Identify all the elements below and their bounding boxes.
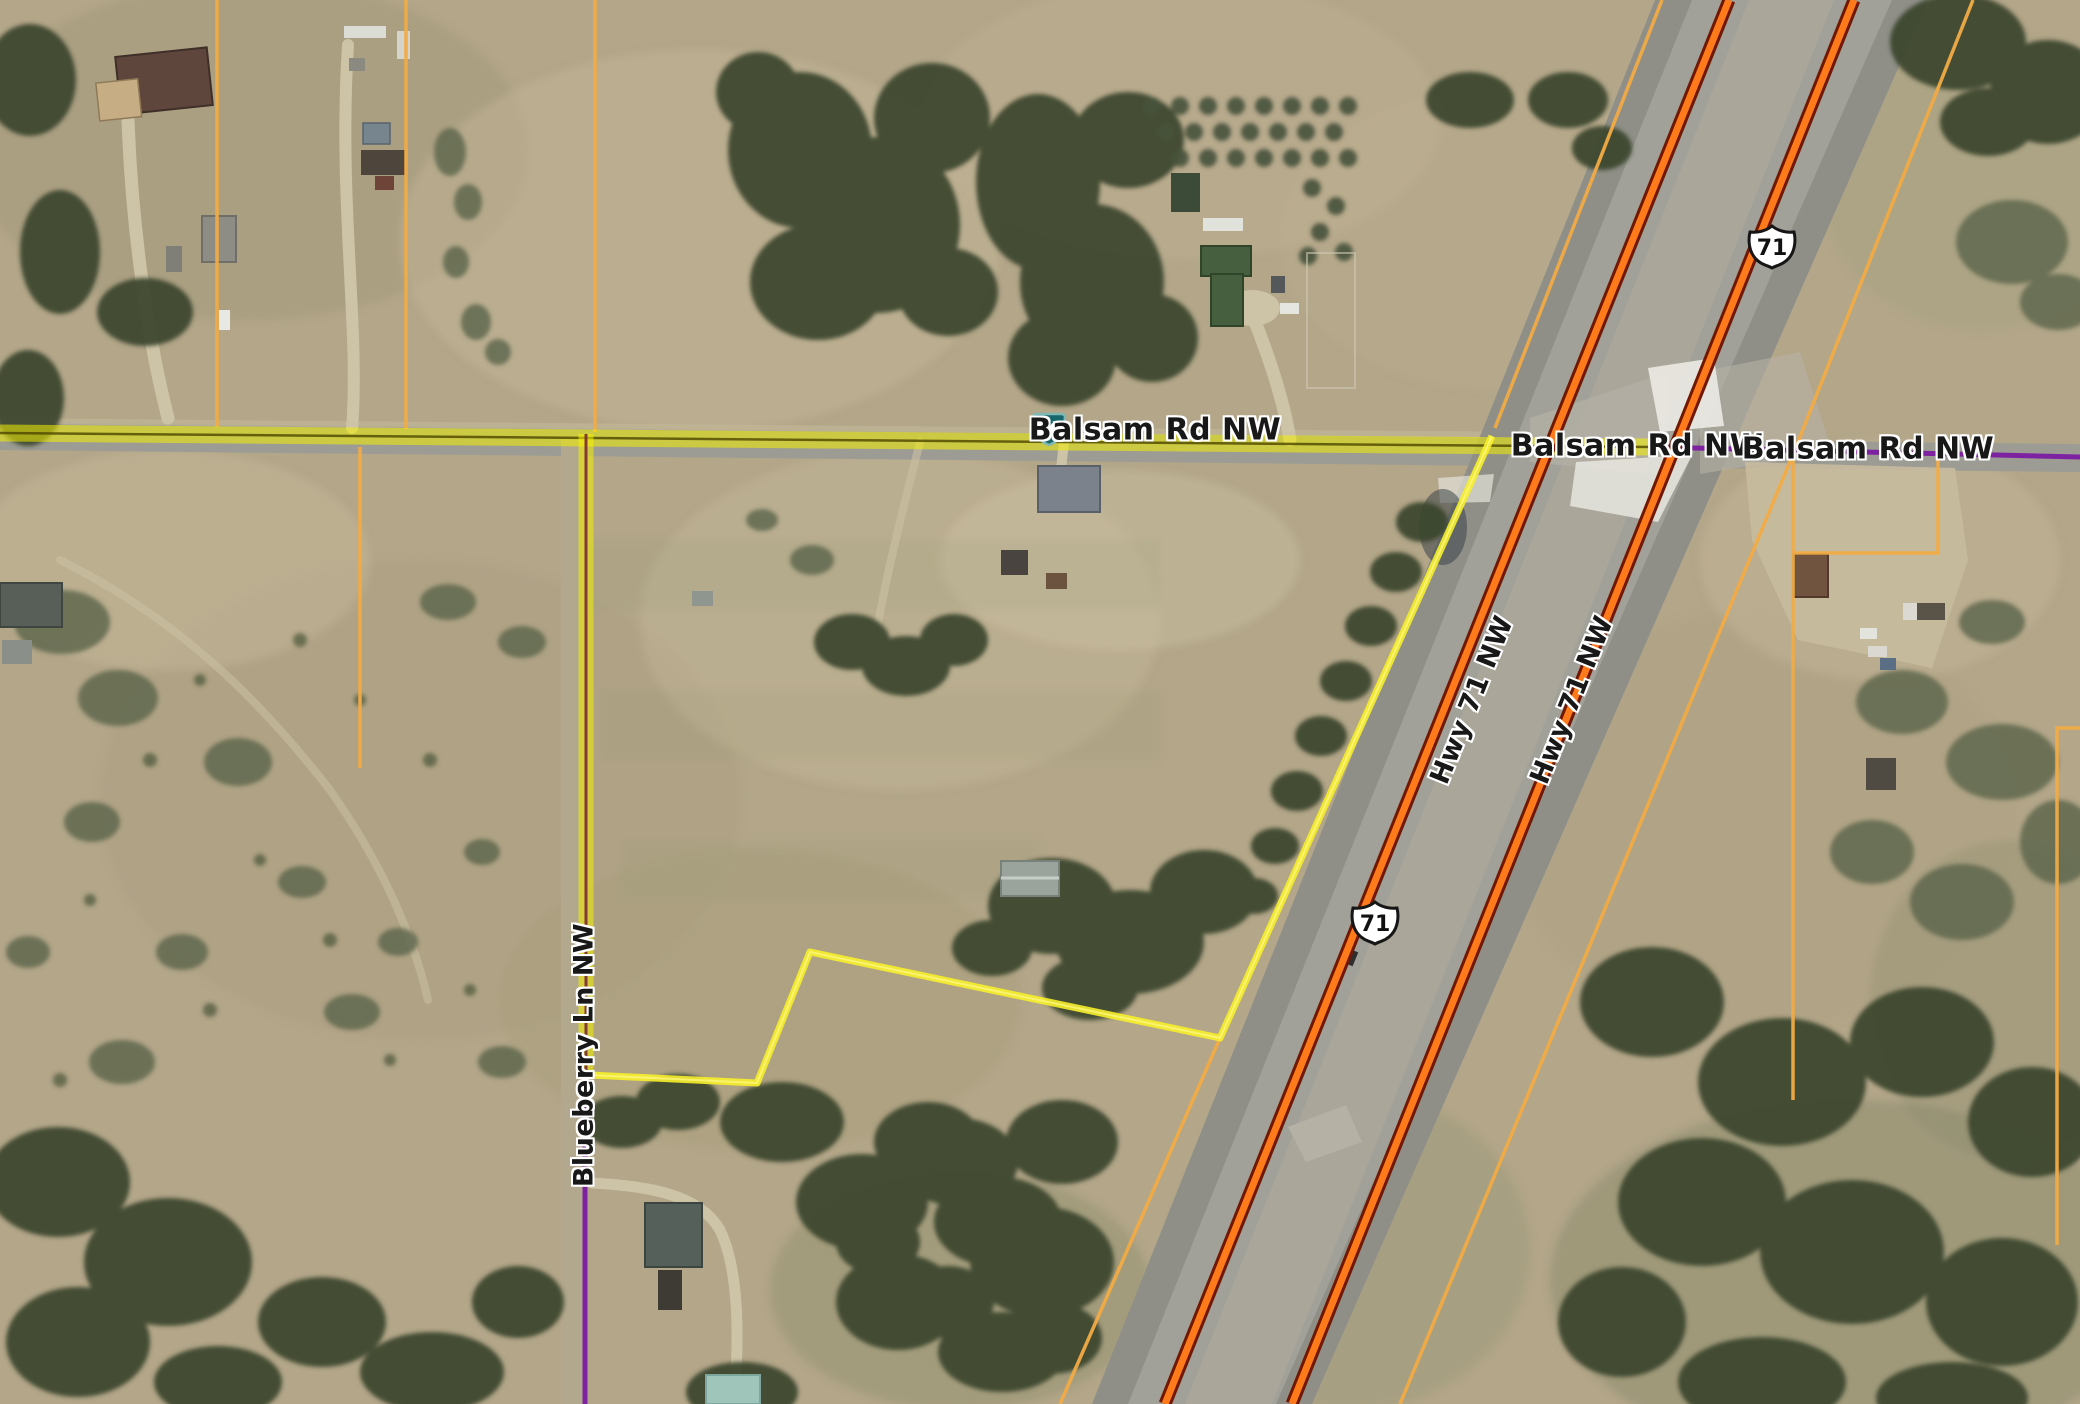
car [219, 310, 230, 330]
east-shed [1866, 758, 1896, 790]
farm2-trailer [344, 26, 386, 38]
farm3-house [1201, 246, 1251, 276]
us-71-number: 71 [1360, 912, 1391, 937]
us-71-shield-south: 71 [1349, 899, 1401, 947]
farm1-house2 [202, 216, 236, 262]
farm3-garage [1171, 173, 1200, 212]
road-label-balsam-east: Balsam Rd NW [1742, 432, 1994, 467]
farm2-barn [361, 150, 405, 175]
road-label-balsam-west: Balsam Rd NW [1029, 413, 1281, 448]
us-71-number: 71 [1757, 236, 1788, 261]
west-edge-house [0, 583, 62, 627]
farm1-shed [166, 246, 182, 272]
farm3-rv [1203, 218, 1243, 231]
road-label-blueberry: Blueberry Ln NW [569, 923, 600, 1187]
east-house [1793, 554, 1828, 597]
south-teal-building [706, 1375, 760, 1404]
us-71-shield-north: 71 [1746, 223, 1798, 271]
aerial-imagery-canvas[interactable] [0, 0, 2080, 1404]
parcel-shed [1001, 550, 1028, 575]
road-label-balsam-center: Balsam Rd NW [1511, 429, 1763, 464]
map-viewport[interactable]: 40 Balsam Rd NW Balsam Rd NW Balsam Rd N… [0, 0, 2080, 1404]
farm2-house [363, 123, 390, 144]
south-house [645, 1203, 702, 1267]
parcel-house [1038, 466, 1100, 512]
